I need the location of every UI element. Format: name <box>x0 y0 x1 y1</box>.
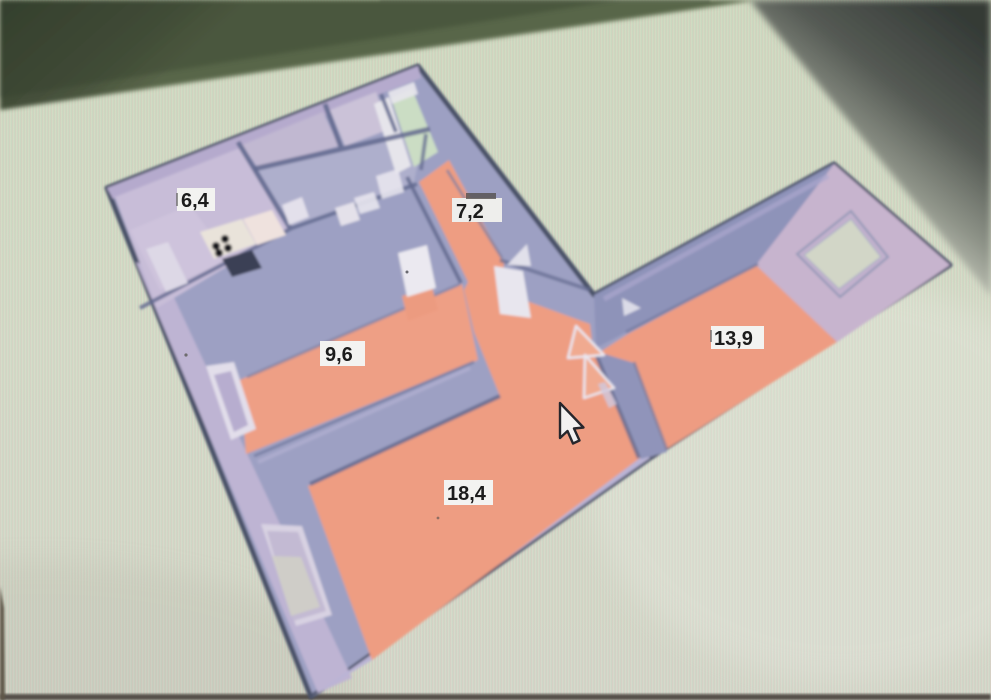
svg-text:7,2: 7,2 <box>456 201 484 223</box>
svg-text:13,9: 13,9 <box>714 328 753 350</box>
svg-text:18,4: 18,4 <box>447 483 487 505</box>
svg-text:9,6: 9,6 <box>325 344 353 366</box>
svg-text:6,4: 6,4 <box>181 190 210 212</box>
